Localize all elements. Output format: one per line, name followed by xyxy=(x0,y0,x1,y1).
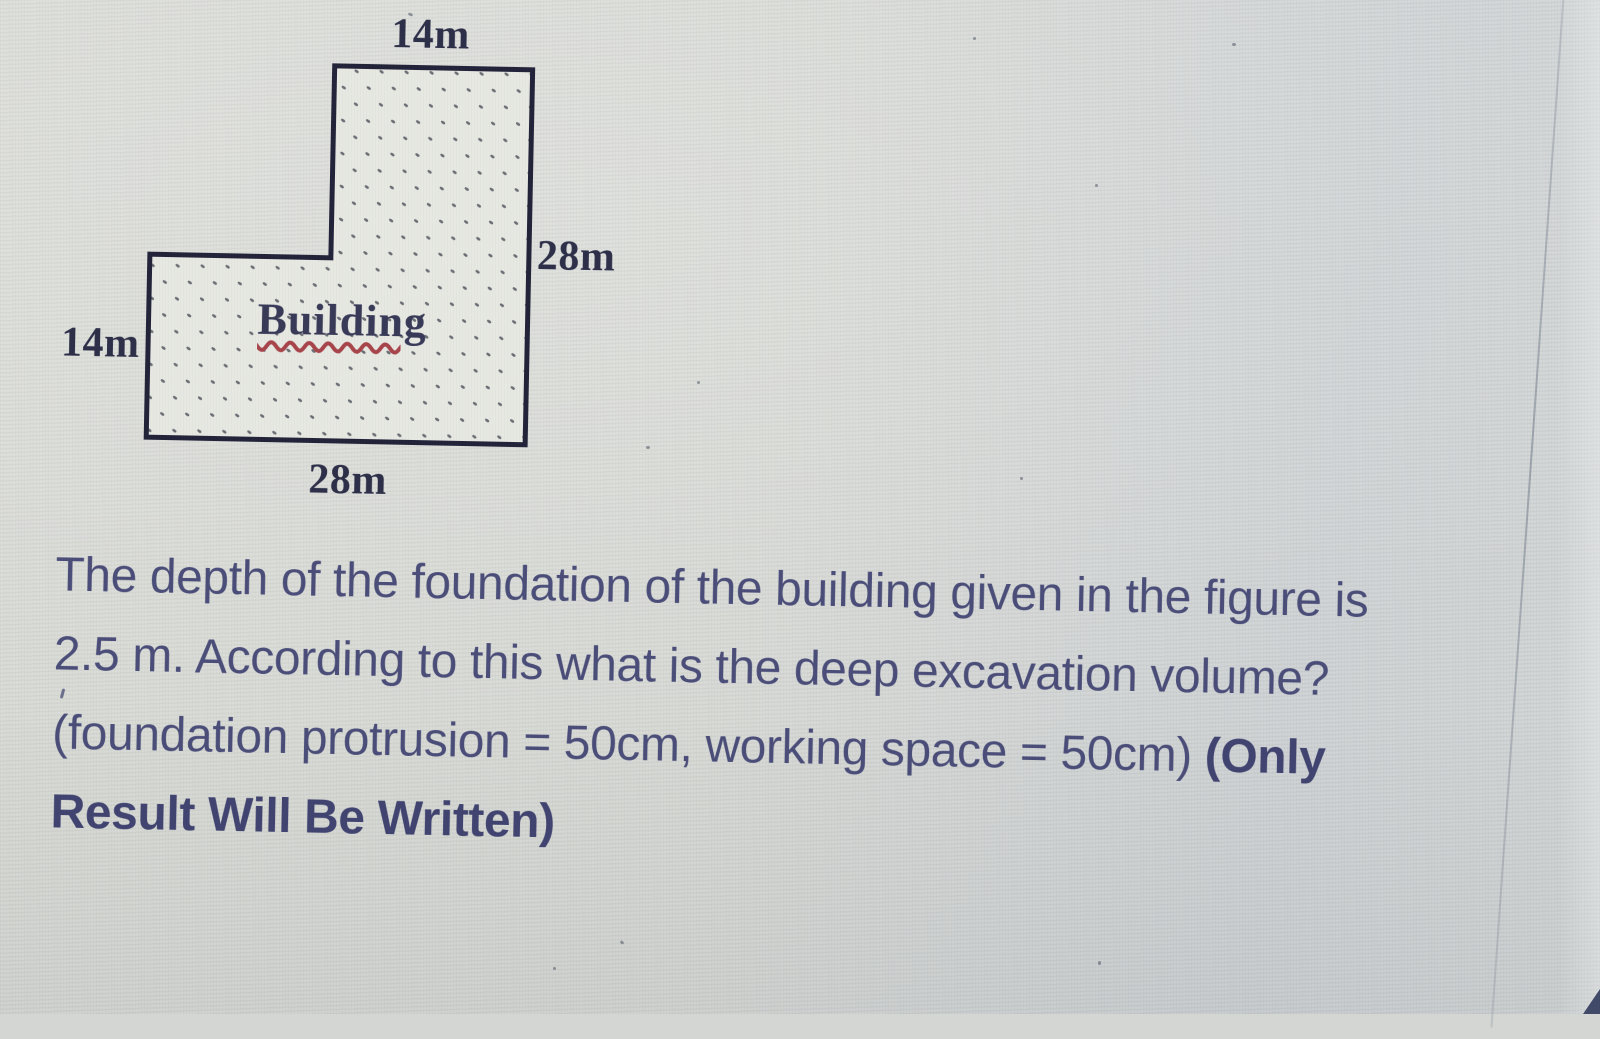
dust-speck xyxy=(1020,477,1023,480)
dim-label-bottom-width: 28m xyxy=(308,458,387,502)
dust-speck xyxy=(553,967,556,970)
question-line-3-bold: (Only xyxy=(1204,729,1326,784)
l-shape-diagram xyxy=(143,59,539,451)
building-figure: 14m 28m 14m 28m Building xyxy=(5,0,1600,25)
corner-dark-triangle xyxy=(1583,989,1600,1014)
question-line-3-regular: (foundation protrusion = 50cm, working s… xyxy=(52,706,1206,782)
dust-speck xyxy=(973,37,976,40)
dust-speck xyxy=(646,446,650,449)
building-label: Building xyxy=(257,295,427,347)
content-wrapper: 14m 28m 14m 28m Building The depth of th… xyxy=(0,0,1600,1039)
dust-speck xyxy=(1095,184,1098,187)
dust-speck xyxy=(697,381,700,384)
question-text: The depth of the foundation of the build… xyxy=(50,535,1536,881)
photo-background: 14m 28m 14m 28m Building The depth of th… xyxy=(0,0,1600,1014)
dim-label-top-width: 14m xyxy=(391,13,470,57)
dim-label-right-height: 28m xyxy=(536,235,615,279)
building-outline xyxy=(146,62,532,445)
dust-speck xyxy=(1232,43,1236,46)
dim-label-left-height: 14m xyxy=(61,321,140,365)
dust-speck xyxy=(1098,961,1101,965)
